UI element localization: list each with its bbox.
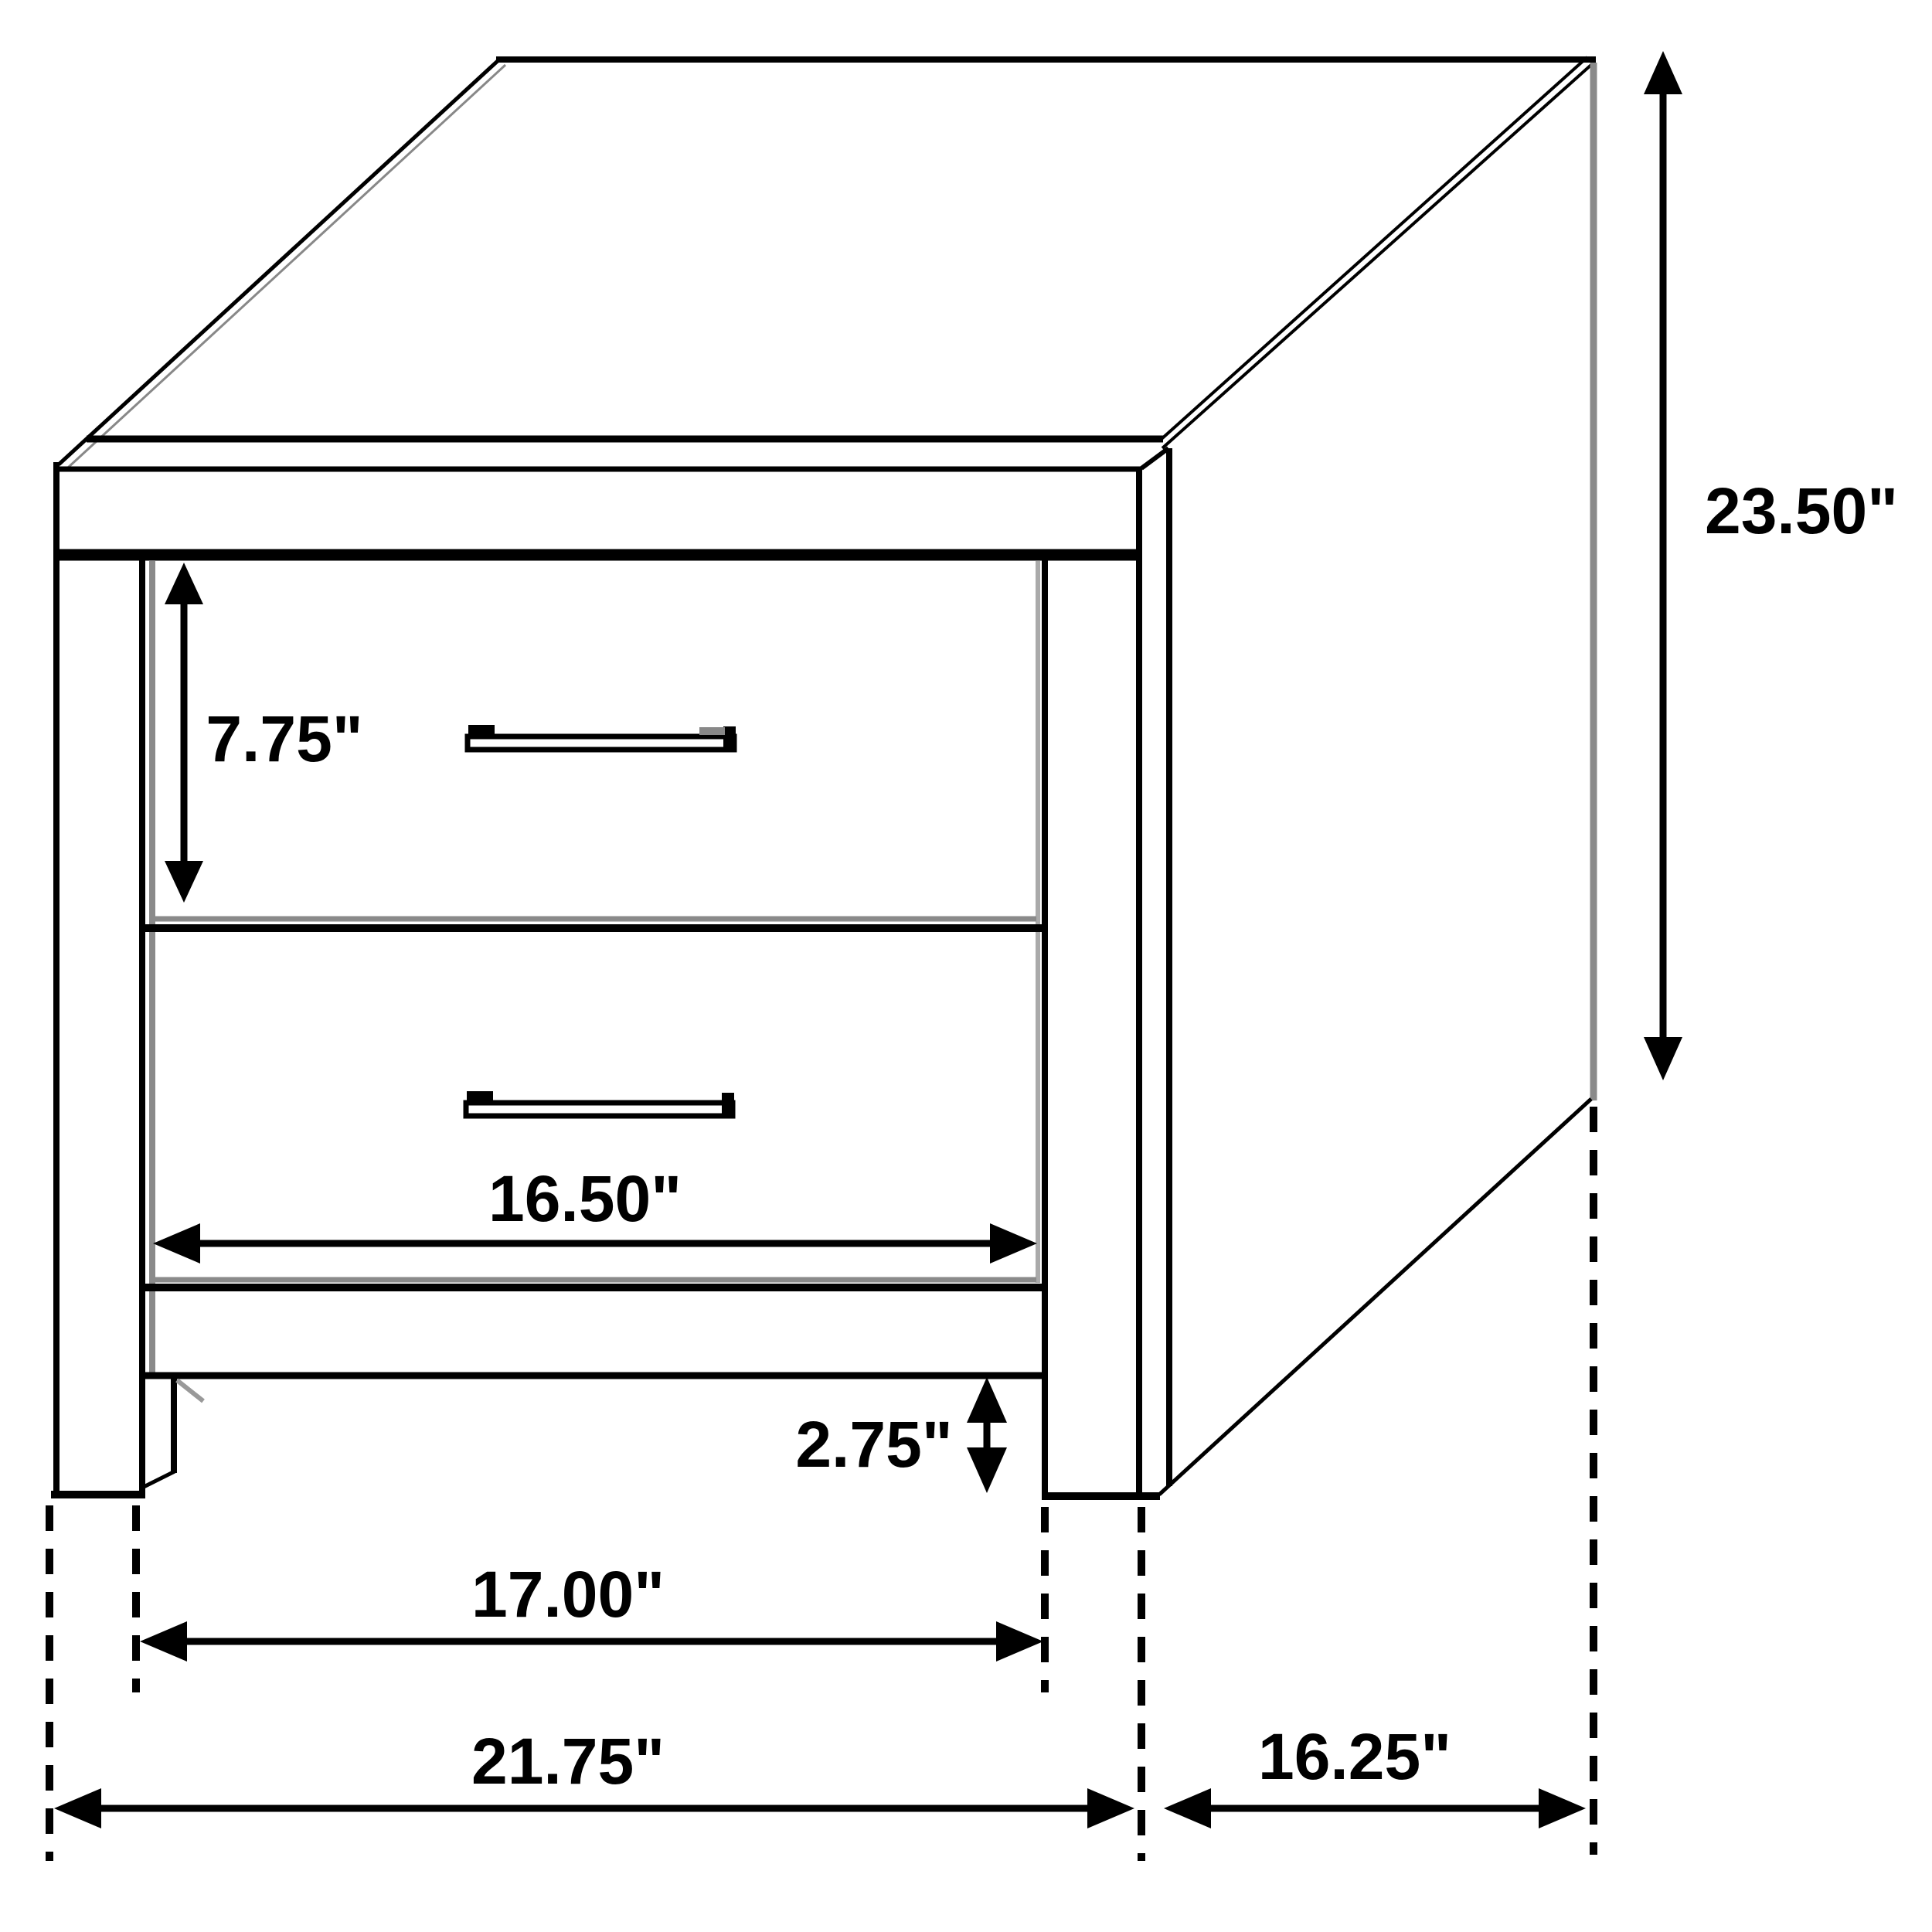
svg-text:23.50": 23.50" — [1705, 474, 1898, 547]
svg-text:21.75": 21.75" — [471, 1725, 665, 1798]
svg-text:17.00": 17.00" — [471, 1558, 665, 1631]
svg-text:16.25": 16.25" — [1258, 1720, 1451, 1793]
svg-text:2.75": 2.75" — [795, 1408, 952, 1481]
svg-text:7.75": 7.75" — [206, 702, 362, 775]
svg-text:16.50": 16.50" — [488, 1162, 682, 1235]
